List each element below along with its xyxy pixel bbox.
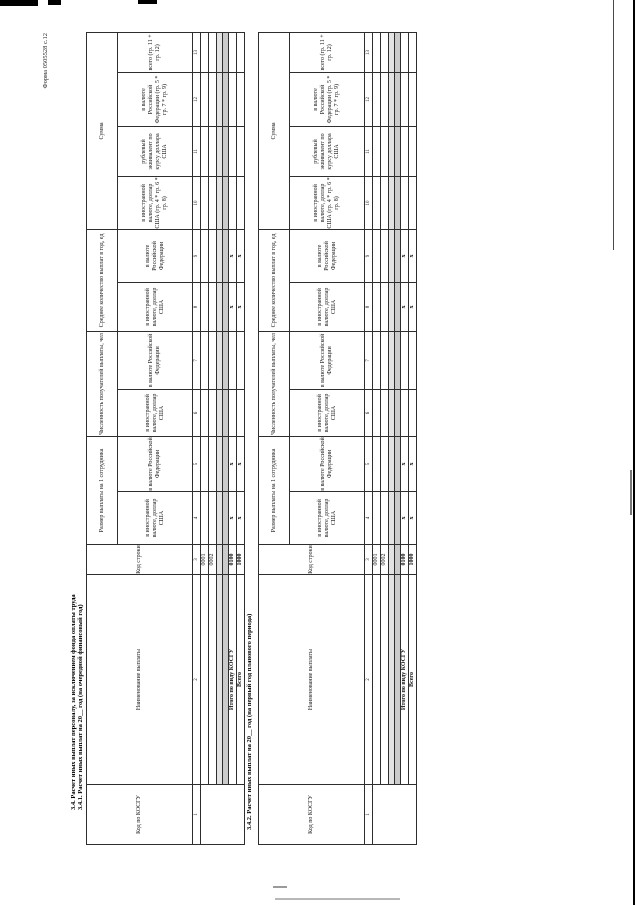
empty-cell <box>209 126 217 176</box>
line-code-cell: 0001 <box>373 545 381 575</box>
total-kosgu-label: Итого по виду КОСГУ <box>401 575 409 785</box>
empty-cell <box>237 32 245 72</box>
column-number: 2 <box>193 575 201 785</box>
empty-cell <box>373 436 381 491</box>
header-size-foreign: в иностранной валюте, доллар США <box>290 492 365 545</box>
column-number: 4 <box>365 492 373 545</box>
empty-cell <box>201 176 209 229</box>
scan-artifact <box>630 470 632 515</box>
empty-cell <box>373 389 381 436</box>
header-sum-ruble-equivalent: рублевый эквивалент по курсу доллара США <box>290 126 365 176</box>
empty-cell <box>401 72 409 126</box>
column-number: 7 <box>365 331 373 389</box>
header-size-per-employee: Размер выплаты на 1 сотрудника <box>259 436 290 544</box>
column-number: 5 <box>193 436 201 491</box>
row-total: Всего 1000 xx xx <box>237 32 245 844</box>
empty-cell <box>401 176 409 229</box>
empty-cell <box>409 176 417 229</box>
empty-cell <box>209 229 217 282</box>
column-number: 13 <box>193 32 201 72</box>
header-count-rub: в валюте Российской Федерации <box>290 331 365 389</box>
column-number: 11 <box>193 126 201 176</box>
header-kosgu-code: Код по КОСГУ <box>87 785 193 845</box>
empty-cell <box>381 126 389 176</box>
header-avg-foreign: в иностранной валюте, доллар США <box>290 282 365 331</box>
header-size-foreign: в иностранной валюте, доллар США <box>118 492 193 545</box>
line-code-cell: 0100 <box>229 545 237 575</box>
column-number: 10 <box>365 176 373 229</box>
x-mark-cell: x <box>237 282 245 331</box>
scan-artifact <box>275 898 400 900</box>
line-code-cell: 0002 <box>209 545 217 575</box>
empty-cell <box>409 389 417 436</box>
empty-cell <box>409 32 417 72</box>
payment-name-cell <box>201 575 209 785</box>
empty-cell <box>401 331 409 389</box>
row-0002: 0002 <box>209 32 217 844</box>
column-number: 13 <box>365 32 373 72</box>
line-code-cell: 1000 <box>237 545 245 575</box>
empty-cell <box>373 492 381 545</box>
row-0002: 0002 <box>381 32 389 844</box>
header-payment-name: Наименование выплаты <box>87 575 193 785</box>
empty-cell <box>381 176 389 229</box>
x-mark-cell: x <box>409 229 417 282</box>
header-sum: Сумма <box>259 32 290 229</box>
empty-cell <box>209 331 217 389</box>
empty-cell <box>381 229 389 282</box>
empty-cell <box>229 32 237 72</box>
header-sum-total: всего (гр. 11 + гр. 12) <box>290 32 365 72</box>
column-number: 8 <box>365 282 373 331</box>
header-size-rub: в валюте Российской Федерации <box>118 436 193 491</box>
header-line-code: Код строки <box>259 545 365 575</box>
empty-cell <box>381 436 389 491</box>
empty-cell <box>381 492 389 545</box>
empty-cell <box>373 126 381 176</box>
header-count-foreign: в иностранной валюте, доллар США <box>118 389 193 436</box>
empty-cell <box>201 72 209 126</box>
total-kosgu-label: Итого по виду КОСГУ <box>229 575 237 785</box>
empty-cell <box>381 331 389 389</box>
header-count-foreign: в иностранной валюте, доллар США <box>290 389 365 436</box>
line-code-cell: 0002 <box>381 545 389 575</box>
payment-name-cell <box>381 575 389 785</box>
header-avg-rub: в валюте Российской Федерации <box>290 229 365 282</box>
line-code-cell: 0100 <box>401 545 409 575</box>
column-numbers-row: 12345678910111213 <box>193 32 201 844</box>
header-sum-foreign: в иностранной валюте, доллар США (гр. 4 … <box>118 176 193 229</box>
x-mark-cell: x <box>237 436 245 491</box>
empty-cell <box>401 389 409 436</box>
header-avg-payments: Среднее количество выплат в год, ед <box>259 229 290 331</box>
column-number: 12 <box>365 72 373 126</box>
empty-cell <box>209 176 217 229</box>
empty-cell <box>201 229 209 282</box>
x-mark-cell: x <box>237 229 245 282</box>
column-number: 12 <box>193 72 201 126</box>
header-row-1: Код по КОСГУ Наименование выплаты Код ст… <box>259 32 290 844</box>
empty-cell <box>401 126 409 176</box>
table-3-4-2: Код по КОСГУ Наименование выплаты Код ст… <box>258 32 417 845</box>
scanned-form-page: { "form_label": "Форма 0505528 с.12", "s… <box>0 0 640 905</box>
header-avg-payments: Среднее количество выплат в год, ед <box>87 229 118 331</box>
column-number: 11 <box>365 126 373 176</box>
x-mark-cell: x <box>401 492 409 545</box>
header-recipients-count: Численность получателей выплаты, чел <box>87 331 118 436</box>
header-size-per-employee: Размер выплаты на 1 сотрудника <box>87 436 118 544</box>
empty-cell <box>209 282 217 331</box>
header-kosgu-code: Код по КОСГУ <box>259 785 365 845</box>
column-number: 1 <box>193 785 201 845</box>
x-mark-cell: x <box>229 282 237 331</box>
empty-cell <box>201 331 209 389</box>
column-number: 8 <box>193 282 201 331</box>
empty-cell <box>201 282 209 331</box>
empty-cell <box>201 492 209 545</box>
column-number: 9 <box>193 229 201 282</box>
payment-name-cell <box>209 575 217 785</box>
total-label: Всего <box>237 575 245 785</box>
header-size-rub: в валюте Российской Федерации <box>290 436 365 491</box>
kosgu-data-cell <box>201 785 245 845</box>
section-3-4-2-titles: 3.4.2. Расчет иных выплат на 20__ год (н… <box>246 614 253 830</box>
empty-cell <box>373 229 381 282</box>
empty-cell <box>229 126 237 176</box>
empty-cell <box>381 282 389 331</box>
empty-cell <box>229 72 237 126</box>
header-sum-foreign: в иностранной валюте, доллар США (гр. 4 … <box>290 176 365 229</box>
form-number-label: Форма 0505528 с.12 <box>42 33 49 117</box>
empty-cell <box>201 126 209 176</box>
x-mark-cell: x <box>229 229 237 282</box>
column-number: 2 <box>365 575 373 785</box>
empty-cell <box>237 126 245 176</box>
column-number: 6 <box>193 389 201 436</box>
x-mark-cell: x <box>401 282 409 331</box>
header-count-rub: в валюте Российской Федерации <box>118 331 193 389</box>
row-0001: 0001 <box>373 32 381 844</box>
total-label: Всего <box>409 575 417 785</box>
row-total: Всего 1000 xx xx <box>409 32 417 844</box>
scan-artifact <box>273 886 287 888</box>
x-mark-cell: x <box>237 492 245 545</box>
empty-cell <box>209 492 217 545</box>
header-row-1: Код по КОСГУ Наименование выплаты Код ст… <box>87 32 118 844</box>
empty-cell <box>229 331 237 389</box>
header-payment-name: Наименование выплаты <box>259 575 365 785</box>
empty-cell <box>373 176 381 229</box>
column-number: 6 <box>365 389 373 436</box>
x-mark-cell: x <box>409 492 417 545</box>
empty-cell <box>373 331 381 389</box>
scan-artifact <box>138 0 157 4</box>
empty-cell <box>373 32 381 72</box>
row-total-kosgu: Итого по виду КОСГУ 0100 xx xx <box>401 32 409 844</box>
column-number: 5 <box>365 436 373 491</box>
scan-edge-artifact <box>633 0 635 905</box>
empty-cell <box>229 389 237 436</box>
header-sum-rub: в валюте Российской Федерации (гр. 5 * г… <box>118 72 193 126</box>
row-total-kosgu: Итого по виду КОСГУ 0100 xx xx <box>229 32 237 844</box>
column-number: 3 <box>193 545 201 575</box>
x-mark-cell: x <box>401 229 409 282</box>
x-mark-cell: x <box>229 436 237 491</box>
empty-cell <box>401 32 409 72</box>
section-3-4-titles: 3.4. Расчет иных выплат персоналу, за ис… <box>70 594 84 810</box>
empty-cell <box>409 331 417 389</box>
column-numbers-row: 12345678910111213 <box>365 32 373 844</box>
empty-cell <box>201 32 209 72</box>
empty-cell <box>237 331 245 389</box>
scan-artifact <box>48 0 61 5</box>
table-3-4-1: Код по КОСГУ Наименование выплаты Код ст… <box>86 32 245 845</box>
header-sum-ruble-equivalent: рублевый эквивалент по курсу доллара США <box>118 126 193 176</box>
row-0001: 0001 <box>201 32 209 844</box>
column-number: 7 <box>193 331 201 389</box>
header-line-code: Код строки <box>87 545 193 575</box>
empty-cell <box>237 389 245 436</box>
empty-cell <box>409 72 417 126</box>
line-code-cell: 0001 <box>201 545 209 575</box>
column-number: 9 <box>365 229 373 282</box>
scan-artifact <box>0 0 38 6</box>
header-sum-rub: в валюте Российской Федерации (гр. 5 * г… <box>290 72 365 126</box>
empty-cell <box>381 72 389 126</box>
x-mark-cell: x <box>229 492 237 545</box>
empty-cell <box>237 72 245 126</box>
section-3-4-2-title: 3.4.2. Расчет иных выплат на 20__ год (н… <box>246 614 253 830</box>
rotated-landscape-content: Форма 0505528 с.12 3.4. Расчет иных выпл… <box>0 0 640 905</box>
column-number: 3 <box>365 545 373 575</box>
header-recipients-count: Численность получателей выплаты, чел <box>259 331 290 436</box>
empty-cell <box>229 176 237 229</box>
empty-cell <box>209 389 217 436</box>
kosgu-data-cell <box>373 785 417 845</box>
empty-cell <box>201 436 209 491</box>
empty-cell <box>409 126 417 176</box>
column-number: 4 <box>193 492 201 545</box>
x-mark-cell: x <box>409 436 417 491</box>
header-avg-foreign: в иностранной валюте, доллар США <box>118 282 193 331</box>
line-code-cell: 1000 <box>409 545 417 575</box>
header-sum: Сумма <box>87 32 118 229</box>
column-number: 10 <box>193 176 201 229</box>
x-mark-cell: x <box>409 282 417 331</box>
empty-cell <box>373 282 381 331</box>
empty-cell <box>209 436 217 491</box>
empty-cell <box>381 389 389 436</box>
x-mark-cell: x <box>401 436 409 491</box>
empty-cell <box>209 72 217 126</box>
header-sum-total: всего (гр. 11 + гр. 12) <box>118 32 193 72</box>
section-3-4-1-title: 3.4.1. Расчет иных выплат на 20__ год (н… <box>77 594 84 810</box>
payment-name-cell <box>373 575 381 785</box>
empty-cell <box>237 176 245 229</box>
empty-cell <box>373 72 381 126</box>
scan-edge-artifact <box>613 0 614 250</box>
empty-cell <box>201 389 209 436</box>
section-3-4-title: 3.4. Расчет иных выплат персоналу, за ис… <box>70 594 77 810</box>
header-avg-rub: в валюте Российской Федерации <box>118 229 193 282</box>
empty-cell <box>381 32 389 72</box>
empty-cell <box>209 32 217 72</box>
column-number: 1 <box>365 785 373 845</box>
